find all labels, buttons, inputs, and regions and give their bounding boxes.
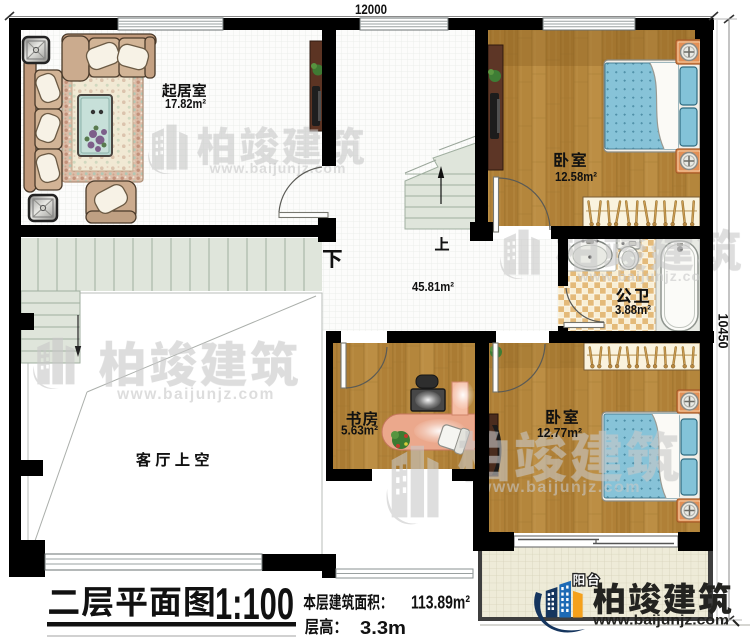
svg-text:12.77m²: 12.77m²: [537, 425, 583, 440]
svg-text:1:100: 1:100: [215, 580, 294, 629]
svg-text:113.89m²: 113.89m²: [411, 592, 470, 613]
svg-text:3.3m: 3.3m: [360, 617, 406, 638]
svg-text:www.baijunjz.com: www.baijunjz.com: [592, 612, 729, 628]
svg-text:www.baijunjz.com: www.baijunjz.com: [478, 479, 641, 496]
svg-text:10450: 10450: [716, 314, 731, 349]
svg-text:17.82m²: 17.82m²: [165, 96, 207, 111]
svg-text:45.81m²: 45.81m²: [412, 279, 455, 294]
svg-text:3.88m²: 3.88m²: [615, 302, 652, 317]
svg-text:12.58m²: 12.58m²: [555, 169, 598, 184]
svg-text:12000: 12000: [355, 2, 387, 17]
svg-text:www.baijunjz.com: www.baijunjz.com: [577, 268, 715, 284]
svg-text:www.baijunjz.com: www.baijunjz.com: [116, 386, 275, 403]
svg-text:5.63m²: 5.63m²: [341, 423, 379, 438]
